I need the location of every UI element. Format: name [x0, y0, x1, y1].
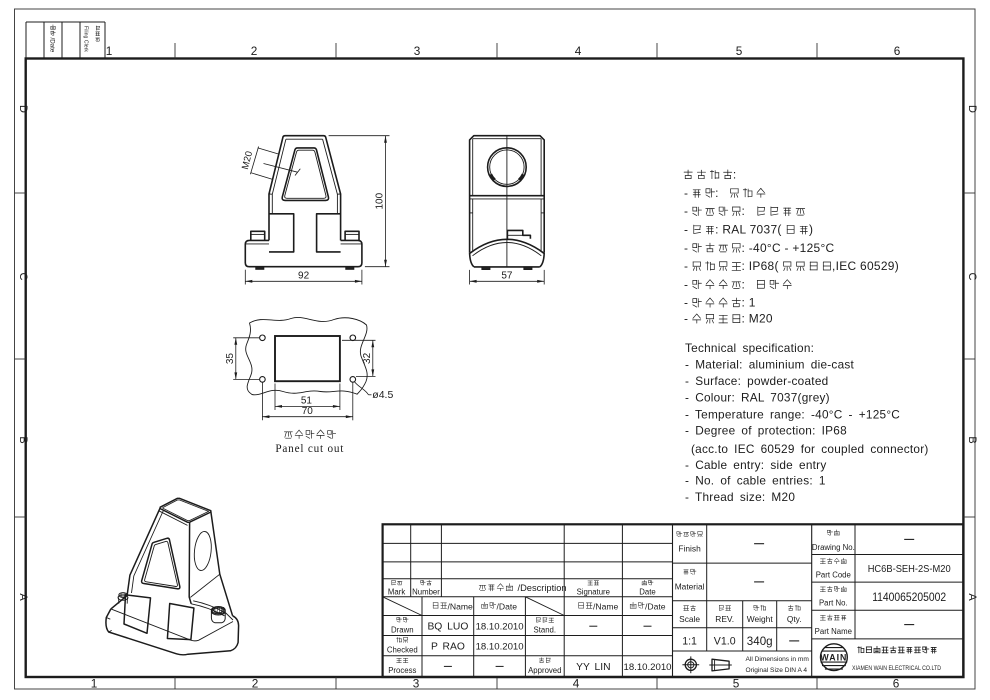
svg-text:Date: Date: [639, 588, 655, 597]
svg-text:3: 3: [414, 44, 421, 58]
svg-text:Stand.: Stand.: [534, 625, 557, 634]
svg-text:: IP68(: : IP68(: [742, 259, 779, 273]
svg-text:/Description: /Description: [518, 583, 567, 593]
svg-text:,IEC 60529): ,IEC 60529): [832, 259, 899, 273]
svg-text:35: 35: [225, 353, 236, 365]
svg-text:-: -: [684, 312, 688, 326]
svg-text:P RAO: P RAO: [431, 642, 465, 653]
svg-text:100: 100: [375, 192, 386, 209]
svg-text:- Thread size: M20: - Thread size: M20: [685, 490, 795, 504]
svg-text::: :: [742, 277, 746, 291]
svg-text:-: -: [684, 259, 688, 273]
svg-text:Weight: Weight: [747, 614, 774, 624]
svg-text::: :: [742, 204, 746, 218]
svg-text:B: B: [966, 436, 978, 443]
svg-text:6: 6: [893, 677, 900, 691]
svg-text:Qty.: Qty.: [787, 614, 802, 624]
svg-text:Drawing No.: Drawing No.: [812, 543, 855, 552]
svg-text:ø4.5: ø4.5: [372, 389, 393, 401]
svg-text:92: 92: [298, 271, 310, 282]
svg-text:Original Size DIN A 4: Original Size DIN A 4: [746, 667, 808, 674]
svg-text:Checked: Checked: [387, 646, 418, 655]
svg-text:- No. of cable entries: 1: - No. of cable entries: 1: [685, 473, 826, 487]
svg-text:/Name: /Name: [593, 602, 619, 612]
svg-text:- Surface: powder-coated: - Surface: powder-coated: [685, 374, 828, 388]
svg-text:2: 2: [251, 44, 258, 58]
svg-text:/Name: /Name: [448, 602, 474, 612]
svg-text:All Dimensions in mm: All Dimensions in mm: [746, 656, 810, 663]
svg-text:YY LIN: YY LIN: [576, 662, 610, 673]
svg-text:): ): [809, 223, 813, 237]
svg-text:Drawn: Drawn: [391, 625, 414, 634]
svg-text:57: 57: [501, 271, 513, 282]
svg-text:Signature: Signature: [577, 588, 610, 597]
svg-text:V1.0: V1.0: [714, 635, 736, 647]
svg-text:6: 6: [894, 44, 901, 58]
svg-text:- Temperature range: -40°C - +: - Temperature range: -40°C - +125°C: [685, 407, 900, 421]
svg-text:: M20: : M20: [742, 312, 773, 326]
svg-text:4: 4: [575, 44, 582, 58]
svg-text:3: 3: [413, 677, 420, 691]
svg-text:-: -: [684, 186, 688, 200]
svg-text:-: -: [684, 223, 688, 237]
svg-text:Number: Number: [412, 588, 440, 597]
svg-text:Scale: Scale: [679, 614, 700, 624]
svg-text:Approved: Approved: [528, 666, 561, 675]
svg-text:HC6B-SEH-2S-M20: HC6B-SEH-2S-M20: [868, 564, 951, 575]
svg-text:1:1: 1:1: [682, 635, 697, 647]
svg-text:: -40°C - +125°C: : -40°C - +125°C: [742, 241, 835, 255]
svg-text:18.10.2010: 18.10.2010: [476, 642, 524, 653]
svg-text:Part Code: Part Code: [816, 571, 851, 580]
svg-text:XIAMEN WAIN ELECTRICAL CO.LTD: XIAMEN WAIN ELECTRICAL CO.LTD: [852, 665, 941, 672]
svg-text:Part No.: Part No.: [819, 599, 848, 608]
svg-text:18.10.2010: 18.10.2010: [623, 662, 671, 673]
svg-text:BQ LUO: BQ LUO: [427, 622, 468, 633]
svg-text::: :: [715, 186, 719, 200]
svg-text:-: -: [684, 296, 688, 310]
svg-text:: 1: : 1: [742, 296, 756, 310]
svg-text:18.10.2010: 18.10.2010: [476, 621, 524, 632]
svg-text:D: D: [966, 105, 978, 113]
svg-text:1140065205002: 1140065205002: [872, 591, 946, 604]
svg-text:1: 1: [91, 677, 98, 691]
svg-text:Part Name: Part Name: [815, 627, 852, 636]
svg-text:/Date: /Date: [497, 602, 518, 612]
svg-text:D: D: [17, 105, 29, 113]
svg-text:WAIN: WAIN: [820, 653, 847, 663]
svg-text:/Date: /Date: [49, 38, 56, 53]
svg-text:Technical specification:: Technical specification:: [685, 341, 814, 355]
svg-text:Panel cut out: Panel cut out: [275, 443, 344, 455]
svg-text::: :: [733, 168, 737, 182]
svg-text:Material: Material: [675, 581, 705, 591]
svg-text:Filing Clerk: Filing Clerk: [83, 26, 89, 52]
svg-text:C: C: [966, 273, 978, 281]
svg-text:- Cable entry: side entry: - Cable entry: side entry: [685, 458, 826, 472]
svg-text:Mark: Mark: [388, 588, 405, 597]
svg-text:5: 5: [736, 44, 743, 58]
svg-text:: RAL 7037(: : RAL 7037(: [715, 223, 782, 237]
svg-text:-: -: [684, 241, 688, 255]
svg-text:(acc.to IEC 60529 for coupled: (acc.to IEC 60529 for coupled connector): [691, 442, 929, 456]
svg-text:Process: Process: [388, 666, 416, 675]
svg-text:4: 4: [573, 677, 580, 691]
svg-text:REV.: REV.: [715, 614, 734, 624]
svg-text:Finish: Finish: [678, 544, 701, 554]
svg-text:-: -: [684, 204, 688, 218]
svg-text:32: 32: [362, 352, 373, 364]
svg-text:- Degree of protection: IP68: - Degree of protection: IP68: [685, 423, 847, 437]
svg-text:A: A: [966, 593, 978, 601]
svg-text:-: -: [684, 277, 688, 291]
svg-text:2: 2: [252, 677, 259, 691]
svg-text:C: C: [17, 273, 29, 281]
svg-text:5: 5: [733, 677, 740, 691]
svg-text:B: B: [17, 436, 29, 443]
svg-text:- Colour: RAL 7037(grey): - Colour: RAL 7037(grey): [685, 390, 830, 404]
svg-text:/Date: /Date: [645, 602, 666, 612]
svg-text:A: A: [17, 593, 29, 601]
svg-text:70: 70: [302, 406, 314, 417]
svg-text:- Material: aluminium die-cast: - Material: aluminium die-cast: [685, 357, 855, 371]
svg-text:340g: 340g: [747, 635, 773, 648]
svg-text:1: 1: [106, 44, 113, 58]
